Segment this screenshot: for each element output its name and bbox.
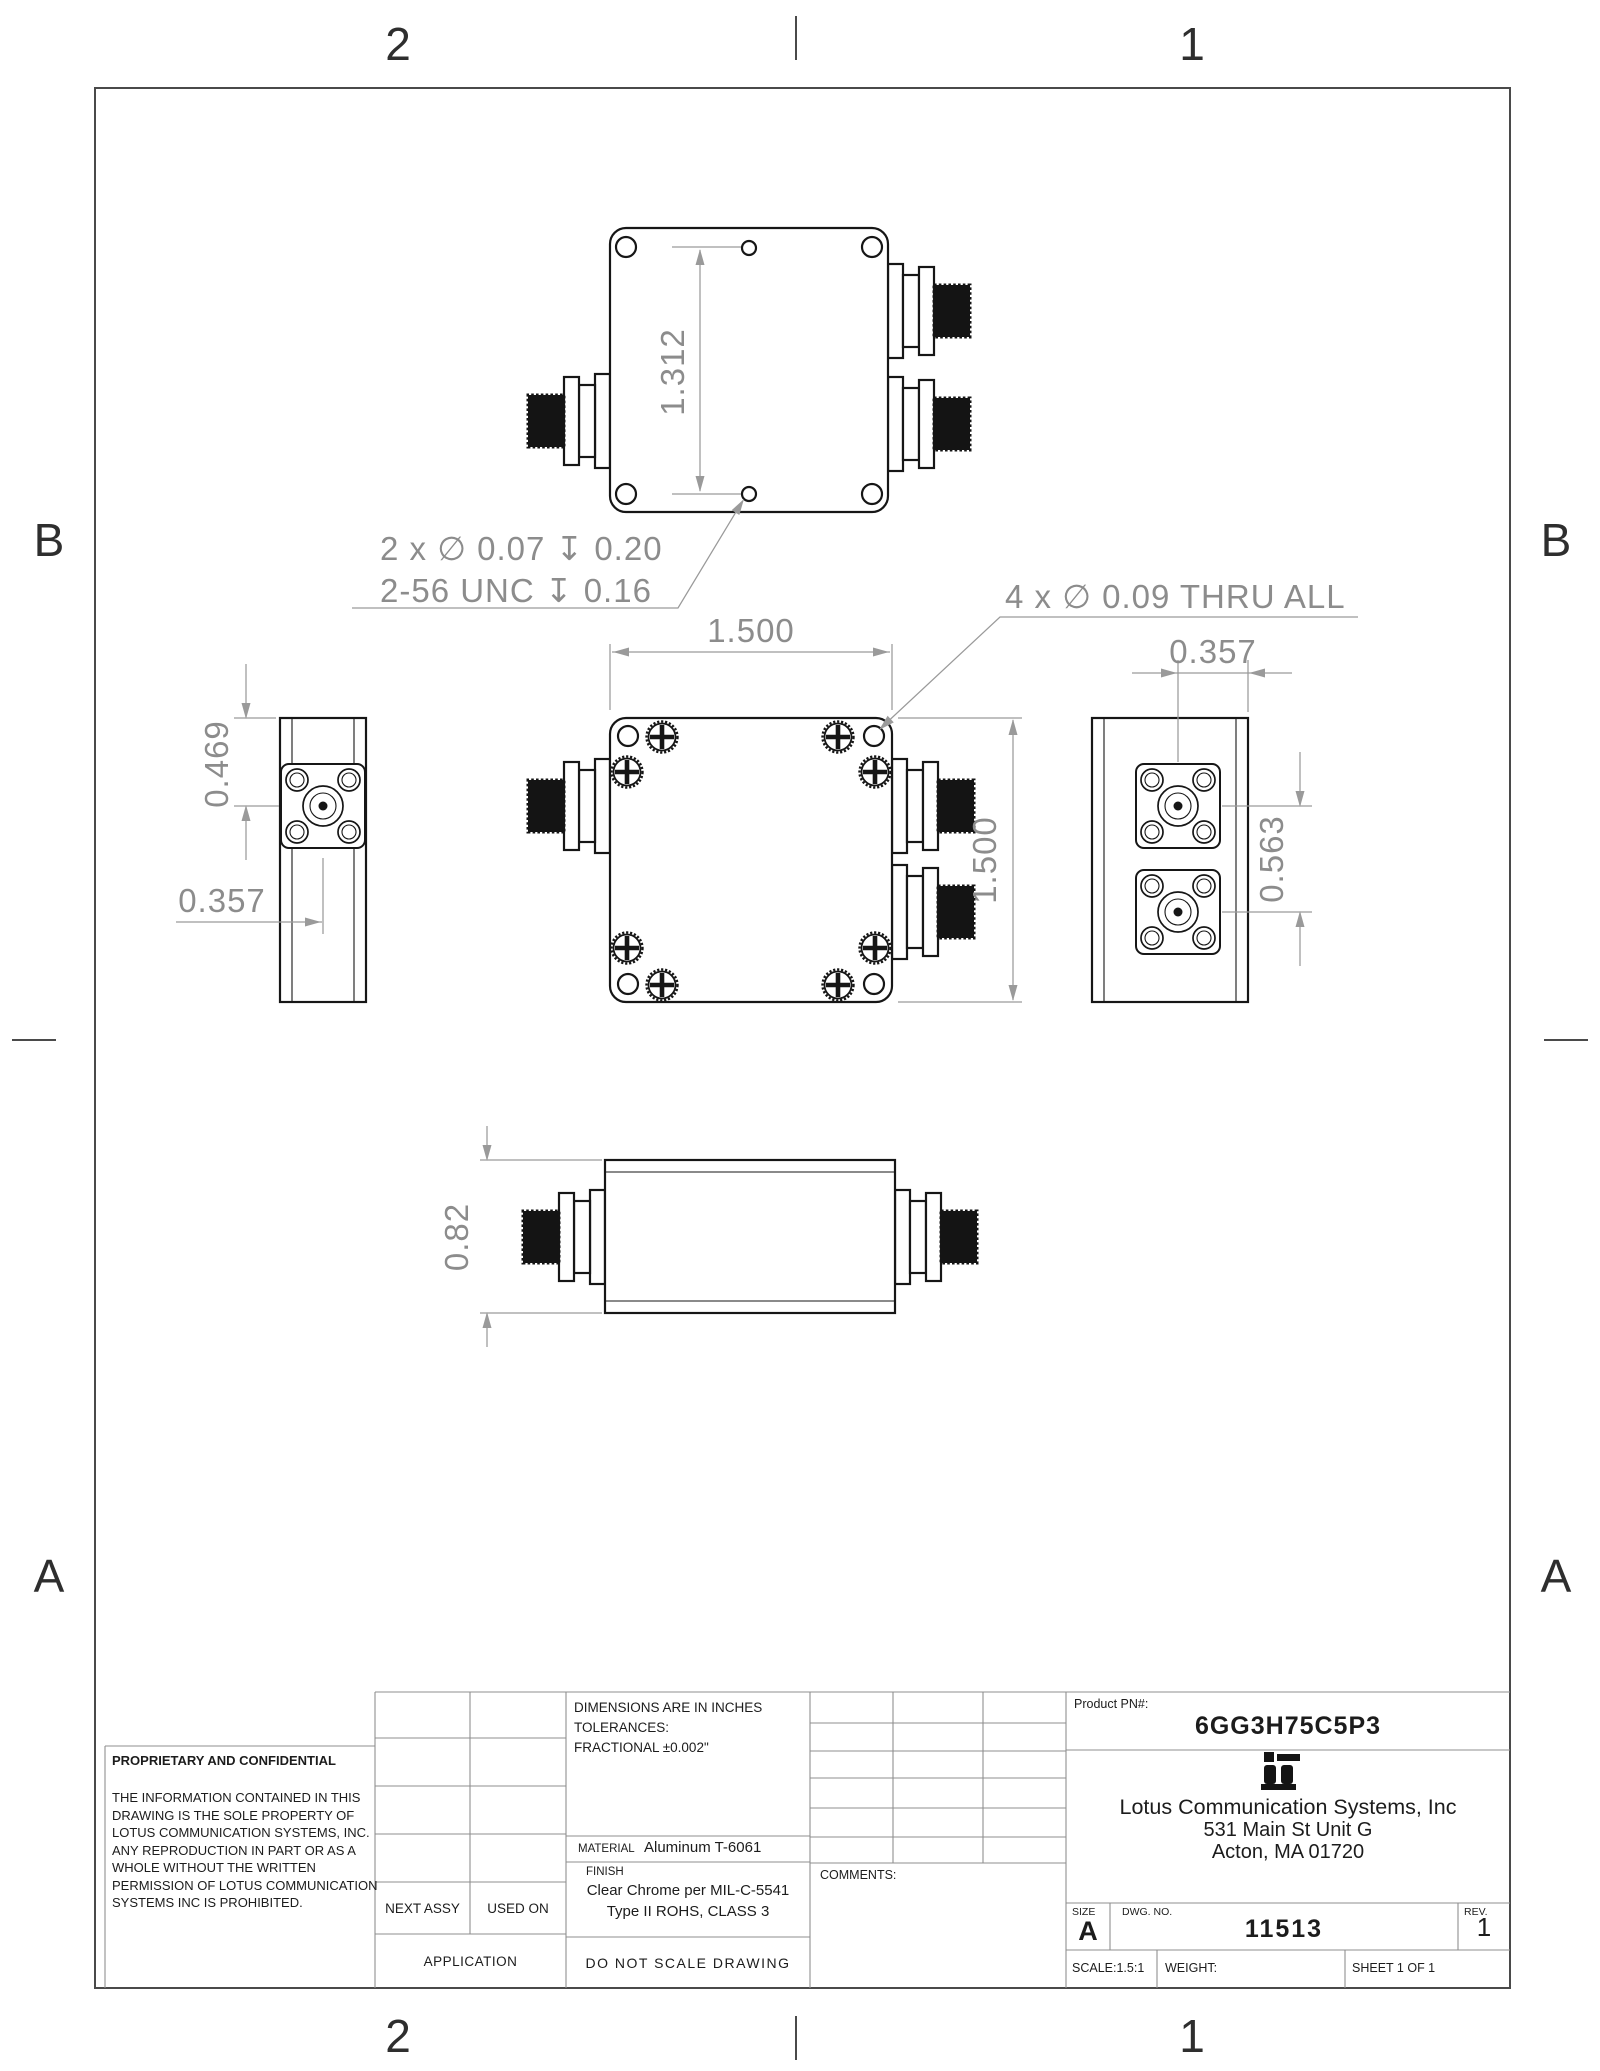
product-pn-value: 6GG3H75C5P3 [1066,1706,1510,1746]
top-view: 1.312 2 x ∅ 0.07 ↧ 0.20 2-56 UNC ↧ 0.16 [352,228,970,609]
finish-value-line2: Type II ROHS, CLASS 3 [566,1901,810,1921]
dim-hole-spacing: 1.312 [654,328,691,416]
dim-front-height: 1.500 [966,816,1003,904]
sma-connector [888,377,970,471]
scale-value: SCALE:1.5:1 [1072,1961,1144,1975]
dims-note-line2: TOLERANCES: [574,1720,669,1735]
company-logo-icon [1261,1752,1300,1790]
connector-flange [1136,870,1220,954]
company-address2: Acton, MA 01720 [1066,1841,1510,1863]
dims-note-line3: FRACTIONAL ±0.002" [574,1740,709,1755]
proprietary-heading: PROPRIETARY AND CONFIDENTIAL [112,1753,370,1768]
zone-label-top-left: 2 [385,18,411,70]
note-tapped-line1: 2 x ∅ 0.07 ↧ 0.20 [380,530,663,567]
zone-label-top-right: 1 [1179,18,1205,70]
connector-flange [1136,764,1220,848]
sma-connector [888,264,970,358]
used-on-label: USED ON [470,1882,566,1934]
sma-connector [895,1190,977,1284]
comments-label: COMMENTS: [820,1868,896,1882]
dim-height-1500: 1.500 [898,718,1022,1002]
dim-right-center-to-edge: 0.357 [1169,633,1257,670]
size-value: A [1066,1914,1110,1948]
sma-connector [528,759,610,853]
zone-label-left-a: A [34,1550,65,1602]
do-not-scale-note: DO NOT SCALE DRAWING [566,1937,810,1988]
zone-label-right-a: A [1541,1550,1572,1602]
connector-flange [281,764,365,848]
company-name: Lotus Communication Systems, Inc [1066,1795,1510,1819]
bottom-view: 0.82 [438,1126,977,1347]
rev-value: 1 [1458,1908,1510,1946]
dim-front-width: 1.500 [707,612,795,649]
finish-label: FINISH [586,1866,624,1878]
dim-width-1500: 1.500 [610,612,892,710]
sma-connector [528,374,610,468]
next-assy-label: NEXT ASSY [375,1882,470,1934]
zone-label-right-b: B [1541,514,1572,566]
sma-connector [523,1190,605,1284]
dim-side-height: 0.82 [438,1203,475,1271]
thru-hole-note: 4 x ∅ 0.09 THRU ALL [876,578,1358,733]
dwg-no-value: 11513 [1110,1911,1458,1947]
sheet-value: SHEET 1 OF 1 [1352,1961,1435,1975]
dim-left-top-to-center: 0.469 [198,720,235,808]
weight-label: WEIGHT: [1165,1961,1217,1975]
note-thru: 4 x ∅ 0.09 THRU ALL [1005,578,1346,615]
tapped-hole-note: 2 x ∅ 0.07 ↧ 0.20 2-56 UNC ↧ 0.16 [352,497,748,609]
sma-connector [892,865,974,959]
application-label: APPLICATION [375,1934,566,1988]
zone-label-bottom-right: 1 [1179,2010,1205,2062]
right-view: 0.357 0.563 [1092,633,1312,1002]
proprietary-body: THE INFORMATION CONTAINED IN THIS DRAWIN… [112,1789,378,1912]
note-tapped-line2: 2-56 UNC ↧ 0.16 [380,572,652,609]
left-view: 0.469 0.357 [176,664,366,1002]
sma-connector [892,759,974,853]
zone-label-bottom-left: 2 [385,2010,411,2062]
dims-note-line1: DIMENSIONS ARE IN INCHES [574,1700,762,1715]
material-value: Aluminum T-6061 [644,1839,761,1856]
finish-value-line1: Clear Chrome per MIL-C-5541 [566,1880,810,1900]
dim-right-port-spacing: 0.563 [1253,815,1290,903]
material-label: MATERIAL [578,1843,635,1855]
dim-left-center-offset: 0.357 [178,882,266,919]
company-address1: 531 Main St Unit G [1066,1819,1510,1841]
drawing-sheet: 2 1 2 1 B B A A 1.312 2 x ∅ 0.07 ↧ 0.20 … [0,0,1600,2071]
zone-label-left-b: B [34,514,65,566]
dim-0469: 0.469 [198,664,279,860]
